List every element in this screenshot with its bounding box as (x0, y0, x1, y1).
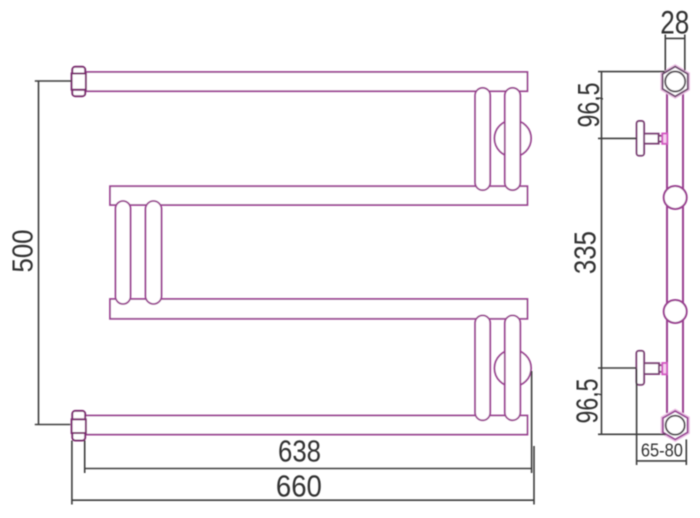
svg-text:65-80: 65-80 (641, 441, 683, 461)
svg-text:660: 660 (276, 470, 322, 504)
svg-text:96,5: 96,5 (571, 379, 605, 424)
svg-text:500: 500 (8, 230, 40, 273)
svg-text:96,5: 96,5 (572, 83, 606, 128)
svg-text:638: 638 (278, 434, 321, 468)
svg-text:335: 335 (569, 231, 603, 274)
svg-text:28: 28 (660, 4, 689, 40)
